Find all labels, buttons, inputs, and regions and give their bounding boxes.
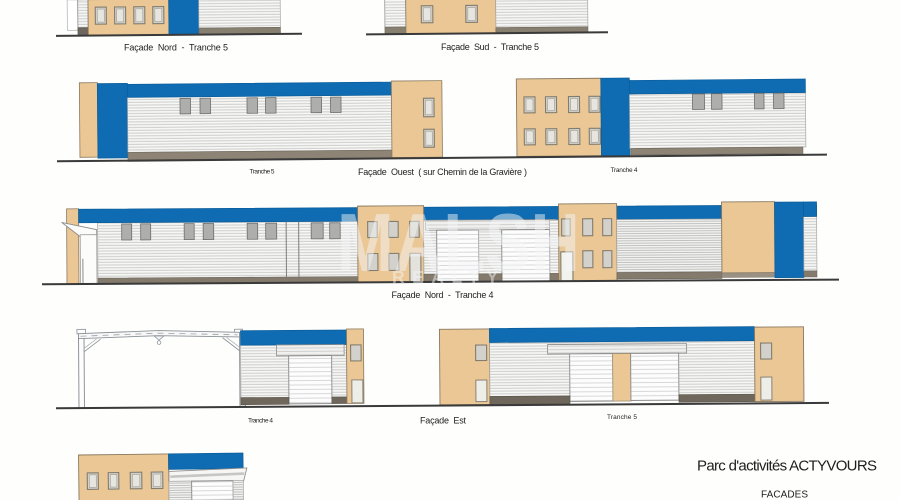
svg-text:Tranche 4: Tranche 4 <box>611 167 638 174</box>
svg-text:Façade Nord - Tranche 4: Façade Nord - Tranche 4 <box>392 290 494 300</box>
svg-text:REALTY: REALTY <box>392 267 506 287</box>
svg-text:Parc d'activités ACTYVOURS: Parc d'activités ACTYVOURS <box>697 458 877 475</box>
svg-text:Façade Est: Façade Est <box>420 416 466 426</box>
svg-text:Tranche 5: Tranche 5 <box>250 169 275 176</box>
svg-text:Tranche 4: Tranche 4 <box>248 418 273 425</box>
svg-text:Façade Ouest ( sur Chemin de: Façade Ouest ( sur Chemin de la Gravière… <box>358 167 527 177</box>
svg-text:FACADES: FACADES <box>761 490 808 500</box>
svg-text:Façade Nord - Tranche 5: Façade Nord - Tranche 5 <box>124 43 228 53</box>
svg-text:Tranche 5: Tranche 5 <box>607 414 637 421</box>
svg-text:Façade Sud - Tranche 5: Façade Sud - Tranche 5 <box>441 42 539 52</box>
